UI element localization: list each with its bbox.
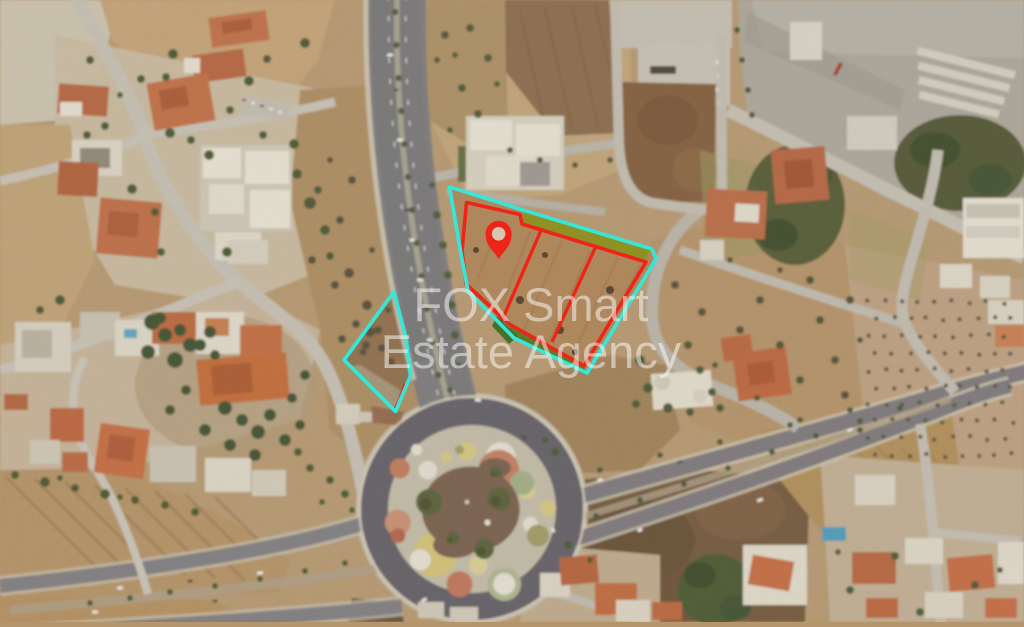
svg-text:FOX Smart: FOX Smart	[413, 278, 648, 331]
svg-text:Estate Agency: Estate Agency	[381, 325, 682, 378]
